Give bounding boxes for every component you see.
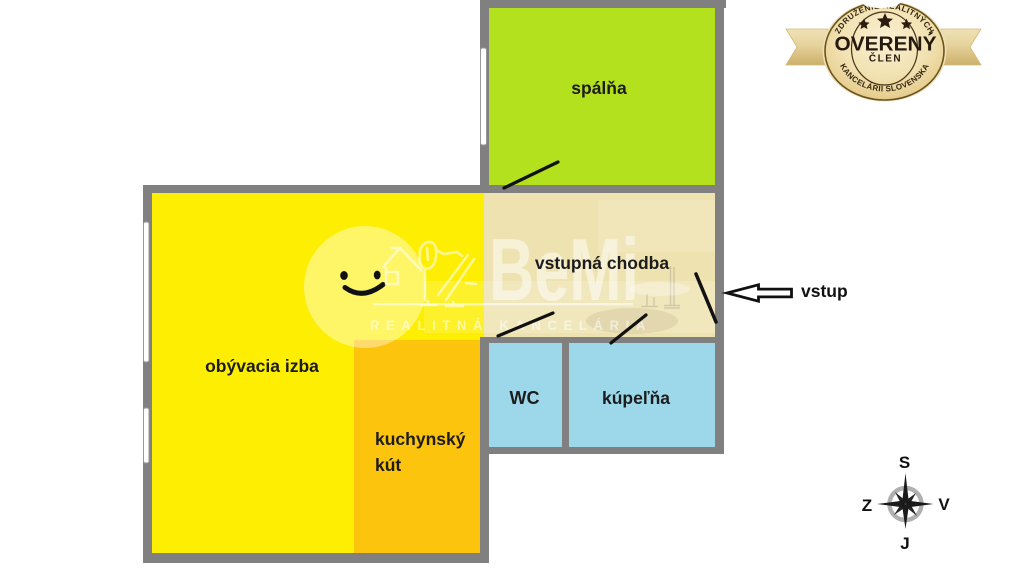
svg-text:WC: WC — [510, 388, 540, 408]
svg-text:ČLEN: ČLEN — [869, 52, 902, 65]
svg-text:kuchynský: kuchynský — [375, 429, 466, 449]
svg-text:J: J — [900, 534, 909, 553]
svg-text:kúpeľňa: kúpeľňa — [602, 388, 670, 408]
svg-text:vstupná chodba: vstupná chodba — [535, 253, 669, 273]
svg-text:obývacia izba: obývacia izba — [205, 356, 319, 376]
svg-text:S: S — [899, 453, 910, 472]
svg-text:Z: Z — [862, 496, 872, 515]
svg-text:spálňa: spálňa — [571, 78, 627, 98]
svg-text:kút: kút — [375, 455, 401, 475]
svg-text:vstup: vstup — [801, 281, 848, 301]
svg-text:V: V — [938, 495, 950, 514]
svg-text:OVERENÝ: OVERENÝ — [835, 32, 938, 56]
